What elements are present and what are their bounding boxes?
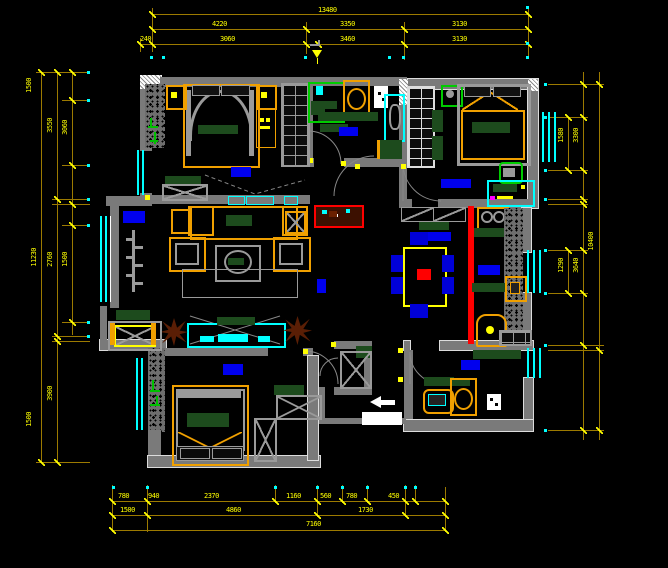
bed-cushion — [221, 85, 250, 96]
rug-pattern — [329, 211, 337, 217]
plant-branch — [135, 264, 143, 267]
kitchen-counter — [472, 283, 505, 292]
dresser-handle — [260, 126, 270, 129]
plant-branch — [135, 282, 143, 285]
wardrobe — [281, 83, 310, 167]
door-hinge — [398, 348, 403, 353]
sofa-arm — [188, 206, 214, 236]
cabinet-knob — [378, 92, 381, 95]
bench-rail — [151, 323, 156, 345]
side-table — [285, 211, 306, 234]
storage-box — [432, 136, 443, 160]
bed-pillow — [472, 122, 510, 133]
door-hinge — [398, 377, 403, 382]
wash-basin — [389, 104, 401, 130]
lamp-icon — [261, 92, 267, 98]
armchair-seat — [175, 243, 199, 265]
toilet-bowl — [347, 88, 366, 110]
wardrobe — [276, 395, 322, 420]
basin-bowl — [428, 394, 446, 406]
bench-top — [165, 176, 201, 184]
door-hinge — [401, 164, 406, 169]
bed-side-rail — [249, 90, 254, 156]
sofa-cushion — [226, 215, 252, 226]
shower-bench — [311, 101, 337, 109]
bed-blanket — [461, 110, 525, 160]
plant-branch — [135, 246, 143, 249]
tv-cabinet-shelf — [200, 336, 214, 342]
table-plant-leaves — [228, 258, 244, 265]
balcony-planter — [116, 310, 150, 320]
plant-branch — [126, 238, 134, 241]
stove-burner — [481, 211, 493, 223]
tv-cabinet-shelf — [258, 336, 270, 342]
ceiling-fan-hub — [446, 90, 454, 98]
bed-drawer — [180, 448, 210, 459]
entry-cabinet — [401, 207, 434, 222]
bathroom-shelf — [473, 350, 521, 359]
bed-headboard — [176, 389, 241, 398]
room-label-bedroom-3 — [223, 364, 243, 375]
door-hinge — [341, 161, 346, 166]
entry-label-block — [362, 412, 402, 425]
rug-pattern — [322, 210, 327, 214]
floor-drain — [487, 394, 501, 410]
desk-blotter — [493, 184, 517, 192]
wardrobe — [407, 86, 435, 168]
room-label-hallway — [317, 279, 326, 293]
sliding-door-track — [468, 206, 474, 344]
room-label-bedroom-2 — [441, 179, 471, 188]
desk-item — [490, 196, 495, 200]
wardrobe — [254, 418, 277, 462]
sink-basin — [510, 282, 520, 294]
dresser-knob — [260, 118, 264, 122]
toilet-tank — [453, 380, 470, 386]
dining-chair — [410, 304, 428, 318]
washing-machine — [499, 330, 532, 346]
dresser-knob — [266, 118, 270, 122]
dining-chair — [391, 277, 403, 294]
armchair-seat — [279, 243, 303, 265]
bed-pillow — [198, 125, 238, 134]
door-hinge — [331, 342, 336, 347]
bed-cushion — [493, 86, 521, 97]
bench-rail — [110, 323, 115, 345]
dining-chair — [442, 255, 454, 272]
desk-item — [497, 196, 513, 199]
bed-cushion — [192, 85, 220, 96]
lamp-icon — [171, 92, 177, 98]
floor-plan-canvas: 13480 4220 3350 3130 240 3060 3460 3130 … — [0, 0, 668, 568]
side-table — [171, 209, 191, 234]
dining-chair — [391, 255, 403, 272]
chair-seat — [503, 168, 515, 177]
door-hinge — [303, 349, 308, 354]
balcony-bench-seat — [114, 325, 156, 347]
tv-cabinet-shelf — [218, 334, 248, 342]
cabinet-planter — [419, 222, 449, 230]
door-hinge — [145, 195, 150, 200]
rug-pattern — [346, 209, 350, 213]
entry-cabinet — [433, 207, 466, 222]
plant-branch — [126, 274, 134, 277]
bathroom-cabinet — [377, 140, 402, 159]
bed-end-bench — [162, 184, 208, 201]
television — [217, 317, 255, 325]
area-rug — [182, 269, 298, 298]
storage-box — [432, 110, 443, 132]
room-label-kitchen — [478, 265, 500, 275]
dining-chair — [442, 277, 454, 294]
bed-drawer — [212, 448, 242, 459]
shelf — [274, 385, 304, 395]
toilet-bowl — [454, 388, 473, 410]
drain-dot — [495, 403, 498, 406]
table-centerpiece — [417, 269, 431, 280]
entry-arrow-tail — [381, 400, 395, 405]
room-label-bathroom — [339, 127, 358, 136]
drain-dot — [490, 398, 493, 401]
desk-item — [521, 185, 525, 189]
room-label-bathroom-2 — [461, 360, 480, 370]
door-hinge — [355, 164, 360, 169]
dining-chair — [410, 232, 428, 245]
shower-head-icon — [316, 86, 323, 95]
entry-arrow-icon — [370, 396, 381, 408]
hallway-rug — [314, 205, 364, 228]
kitchen-counter — [474, 228, 506, 237]
plant-branch — [126, 256, 134, 259]
heater-dial — [486, 326, 494, 334]
bed-cushion — [464, 86, 491, 97]
bathroom-shelf — [318, 112, 378, 121]
room-label-living-room — [123, 211, 145, 223]
washing-machine — [340, 351, 372, 389]
bed-pillow — [187, 413, 229, 427]
room-label-master-bedroom — [231, 167, 251, 177]
